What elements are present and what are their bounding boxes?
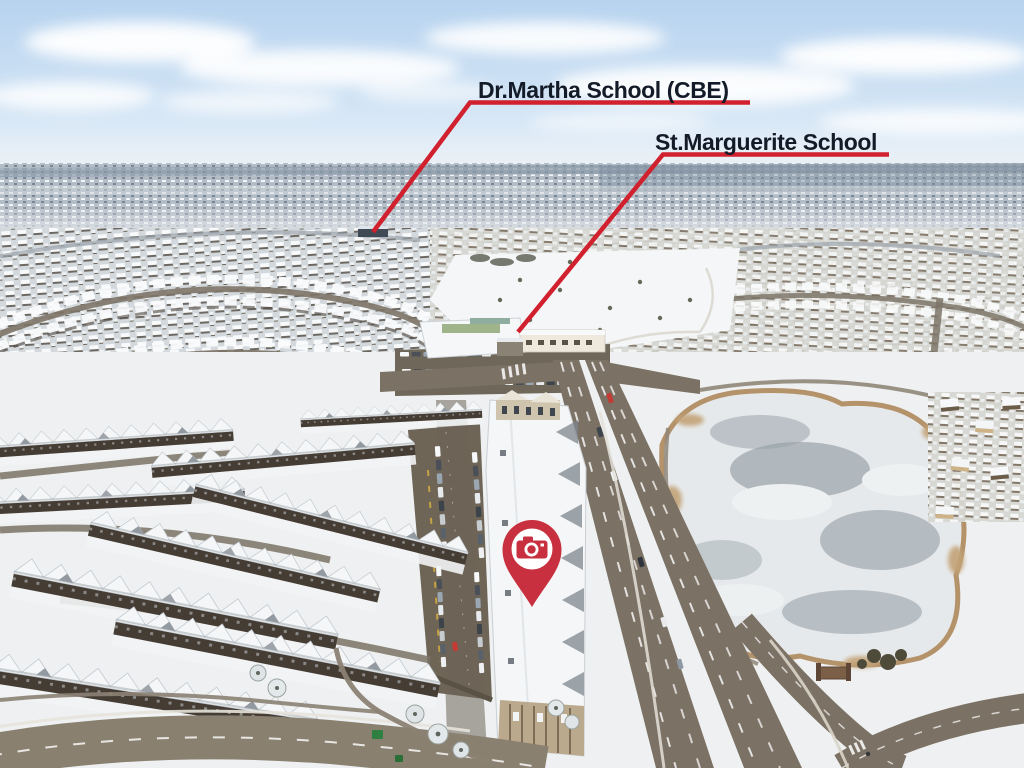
school-label-dr-martha: Dr.Martha School (CBE) [478, 79, 729, 102]
annotated-aerial-photo: Dr.Martha School (CBE) St.Marguerite Sch… [0, 0, 1024, 768]
green-bin [395, 755, 403, 762]
lakeside-houses [928, 392, 1024, 522]
aerial-photo [0, 0, 1024, 768]
green-bin [372, 730, 383, 739]
school-label-st-marguerite: St.Marguerite School [655, 131, 877, 154]
far-cityscape [0, 163, 1024, 233]
